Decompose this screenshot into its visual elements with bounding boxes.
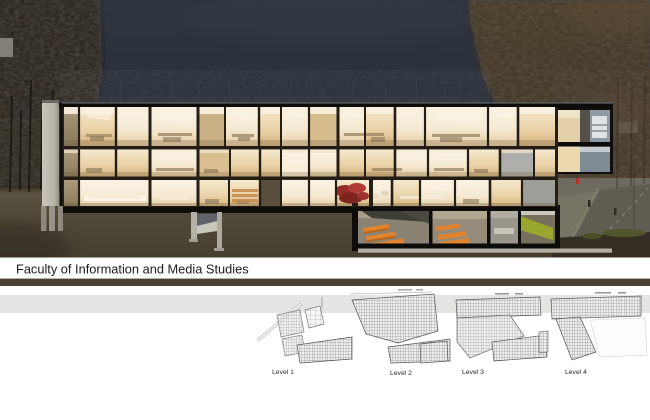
svg-text:Level 3: Level 3 <box>462 369 484 376</box>
svg-text:Level 2: Level 2 <box>390 370 412 377</box>
svg-text:Level 1: Level 1 <box>272 369 294 376</box>
svg-text:Faculty of Information and Med: Faculty of Information and Media Studies <box>16 262 249 277</box>
svg-text:Level 4: Level 4 <box>565 369 587 376</box>
